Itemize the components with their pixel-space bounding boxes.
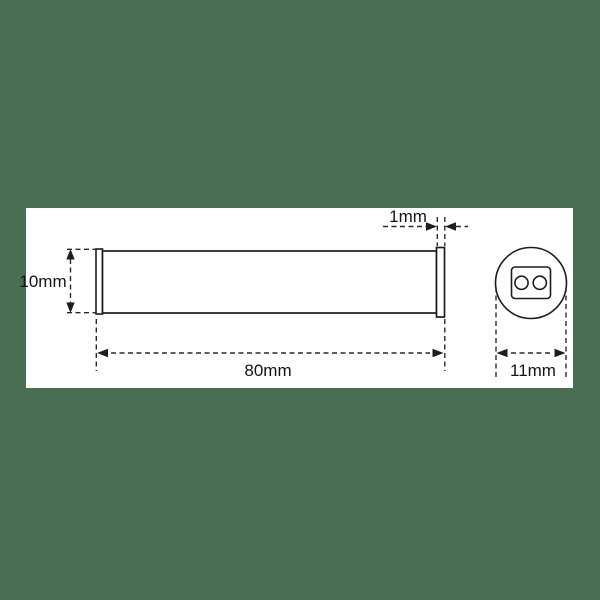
dimension-drawing: 10mm 1mm 80mm: [0, 0, 600, 600]
height-label: 10mm: [19, 272, 66, 291]
flange-label: 1mm: [389, 207, 427, 226]
end-view: [496, 248, 567, 319]
screenshot-root: 10mm 1mm 80mm: [0, 0, 600, 600]
left-end-cap: [96, 249, 103, 314]
side-view: [96, 248, 445, 318]
right-flange: [437, 248, 445, 318]
length-label: 80mm: [244, 361, 291, 380]
pin-hole-left: [515, 276, 528, 289]
diameter-label: 11mm: [510, 361, 556, 380]
pin-hole-right: [533, 276, 546, 289]
cylinder-body: [103, 251, 437, 313]
